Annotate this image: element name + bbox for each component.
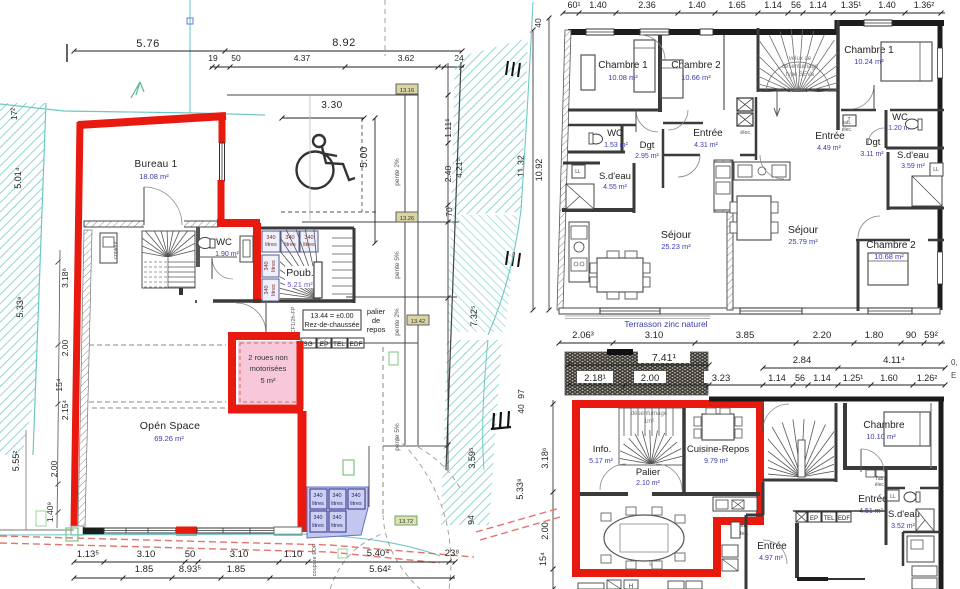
svg-text:1.40: 1.40 — [688, 0, 706, 10]
svg-text:2.00: 2.00 — [60, 339, 70, 356]
svg-text:13.44 = ±0.00: 13.44 = ±0.00 — [311, 313, 354, 320]
svg-text:60¹: 60¹ — [567, 0, 580, 10]
svg-text:LL: LL — [575, 169, 581, 175]
svg-text:Poub.: Poub. — [286, 267, 313, 279]
svg-text:17²: 17² — [9, 108, 19, 120]
svg-text:5.76: 5.76 — [136, 38, 159, 50]
svg-text:13.26: 13.26 — [400, 216, 415, 222]
svg-text:10.66 m²: 10.66 m² — [681, 73, 711, 82]
svg-text:litres: litres — [271, 260, 277, 272]
svg-text:S.d'eau: S.d'eau — [888, 509, 920, 520]
svg-text:Palier: Palier — [636, 467, 660, 478]
svg-text:4.37: 4.37 — [294, 53, 311, 63]
svg-text:7.41¹: 7.41¹ — [652, 352, 676, 364]
svg-text:3.11 m²: 3.11 m² — [860, 151, 884, 158]
svg-text:litres: litres — [312, 501, 324, 507]
svg-text:50: 50 — [185, 549, 196, 560]
svg-text:1.40: 1.40 — [589, 0, 607, 10]
svg-text:40: 40 — [516, 404, 526, 414]
svg-text:1.14: 1.14 — [768, 373, 786, 383]
svg-text:3.18⁶: 3.18⁶ — [540, 447, 550, 469]
svg-text:LL: LL — [933, 167, 939, 173]
svg-text:5.00: 5.00 — [359, 146, 370, 167]
svg-text:5 m²: 5 m² — [261, 376, 277, 385]
svg-text:Terrasson zinc naturel: Terrasson zinc naturel — [624, 319, 707, 329]
svg-text:coupure EDF: coupure EDF — [312, 543, 318, 576]
svg-text:5.33⁸: 5.33⁸ — [515, 478, 525, 500]
svg-text:1.10: 1.10 — [284, 549, 303, 560]
svg-text:340: 340 — [266, 235, 275, 241]
svg-text:1.53 m²: 1.53 m² — [604, 142, 628, 149]
svg-text:1.13⁵: 1.13⁵ — [77, 549, 99, 560]
svg-text:340: 340 — [264, 285, 270, 294]
svg-text:EP: EP — [320, 341, 329, 348]
svg-text:3.62: 3.62 — [398, 53, 415, 63]
svg-text:1.36²: 1.36² — [914, 0, 935, 10]
svg-text:litres: litres — [271, 284, 277, 296]
svg-text:340: 340 — [313, 493, 322, 499]
svg-text:13.72: 13.72 — [399, 519, 414, 525]
svg-text:4.49 m²: 4.49 m² — [817, 145, 841, 152]
svg-text:5.55²: 5.55² — [11, 451, 21, 472]
svg-text:copieur: copieur — [113, 241, 119, 259]
svg-text:3.23: 3.23 — [712, 373, 731, 384]
svg-text:2.20: 2.20 — [813, 330, 832, 341]
svg-text:élec.: élec. — [875, 482, 886, 488]
svg-text:2.10 m²: 2.10 m² — [636, 480, 660, 487]
svg-text:3.18⁶: 3.18⁶ — [60, 268, 70, 288]
svg-text:litres: litres — [350, 501, 362, 507]
svg-text:E: E — [951, 371, 956, 380]
svg-text:EDF: EDF — [838, 516, 850, 522]
svg-text:Séjour: Séjour — [788, 224, 819, 236]
svg-text:340: 340 — [313, 515, 322, 521]
svg-text:13.42: 13.42 — [411, 319, 426, 325]
svg-text:litres: litres — [312, 523, 324, 529]
svg-text:1.85: 1.85 — [135, 564, 154, 575]
svg-text:litres: litres — [331, 523, 343, 529]
svg-text:TEL: TEL — [333, 341, 345, 348]
svg-text:7.32⁵: 7.32⁵ — [469, 305, 479, 327]
svg-text:2.00: 2.00 — [540, 522, 550, 540]
svg-text:5.33⁸: 5.33⁸ — [15, 296, 25, 318]
svg-text:5.01⁴: 5.01⁴ — [13, 167, 23, 189]
svg-text:pente 5%: pente 5% — [394, 251, 401, 279]
svg-text:5.64²: 5.64² — [369, 564, 391, 575]
svg-text:4.55 m²: 4.55 m² — [603, 184, 627, 191]
svg-text:4.97 m²: 4.97 m² — [759, 555, 783, 562]
svg-text:97: 97 — [516, 389, 526, 399]
svg-text:type SEVa: type SEVa — [786, 72, 815, 78]
svg-text:15⁴: 15⁴ — [54, 378, 64, 391]
svg-text:WC: WC — [607, 128, 623, 139]
svg-text:70: 70 — [444, 207, 454, 217]
svg-text:4.31 m²: 4.31 m² — [694, 142, 718, 149]
svg-text:1.26²: 1.26² — [917, 373, 938, 383]
svg-text:SG: SG — [303, 341, 312, 348]
svg-text:5.40⁴: 5.40⁴ — [367, 548, 390, 559]
svg-text:1.40: 1.40 — [878, 0, 896, 10]
svg-text:90: 90 — [906, 330, 917, 341]
svg-text:340: 340 — [332, 493, 341, 499]
svg-text:3.10: 3.10 — [137, 549, 156, 560]
svg-text:Info.: Info. — [593, 444, 612, 455]
svg-text:1.14: 1.14 — [764, 0, 782, 10]
svg-text:3.10: 3.10 — [230, 549, 249, 560]
svg-text:4.11⁴: 4.11⁴ — [883, 355, 905, 366]
svg-text:15⁴: 15⁴ — [538, 552, 548, 566]
svg-text:Séjour: Séjour — [661, 229, 692, 241]
svg-text:2.00: 2.00 — [641, 373, 660, 384]
svg-text:10.24 m²: 10.24 m² — [854, 57, 884, 66]
svg-text:motorisées: motorisées — [250, 364, 287, 373]
svg-text:69.26 m²: 69.26 m² — [154, 434, 184, 443]
svg-text:repos: repos — [367, 325, 386, 334]
svg-text:25.23 m²: 25.23 m² — [661, 242, 691, 251]
svg-text:vélux de: vélux de — [789, 56, 812, 62]
svg-text:WC: WC — [892, 112, 908, 123]
svg-text:1.14: 1.14 — [813, 373, 831, 383]
svg-text:élec.: élec. — [842, 127, 853, 133]
svg-text:pente 2%: pente 2% — [394, 158, 401, 186]
svg-text:10.92: 10.92 — [534, 159, 544, 182]
svg-text:3.85: 3.85 — [736, 330, 755, 341]
svg-text:LL: LL — [890, 494, 896, 500]
svg-text:8.93⁵: 8.93⁵ — [179, 564, 201, 575]
svg-text:1m²: 1m² — [644, 419, 654, 425]
svg-text:H: H — [629, 584, 633, 589]
svg-text:Bureau 1: Bureau 1 — [135, 159, 178, 170]
svg-text:Chambre 1: Chambre 1 — [844, 45, 894, 56]
svg-text:340: 340 — [264, 261, 270, 270]
svg-text:Cuisine-Repos: Cuisine-Repos — [687, 444, 750, 455]
svg-text:18.08 m²: 18.08 m² — [139, 172, 169, 181]
svg-text:WC: WC — [216, 237, 232, 248]
svg-text:9.79 m²: 9.79 m² — [704, 458, 728, 465]
svg-text:23⁸: 23⁸ — [445, 548, 460, 559]
svg-text:1.80: 1.80 — [865, 330, 884, 341]
svg-text:Rez-de-chaussée: Rez-de-chaussée — [305, 322, 360, 329]
svg-text:Dgt: Dgt — [640, 140, 655, 151]
svg-text:élec.: élec. — [740, 130, 752, 136]
svg-text:TEL: TEL — [823, 516, 835, 522]
svg-text:8.92: 8.92 — [332, 37, 355, 49]
svg-text:3.30: 3.30 — [321, 100, 342, 111]
svg-text:de: de — [372, 316, 380, 325]
svg-text:2.06³: 2.06³ — [572, 330, 594, 341]
svg-text:3.59 m²: 3.59 m² — [901, 163, 925, 170]
svg-text:13.16: 13.16 — [400, 88, 415, 94]
svg-text:Entrée: Entrée — [815, 131, 845, 142]
svg-text:CF1/2h-FP: CF1/2h-FP — [291, 306, 297, 333]
svg-text:4.21⁵: 4.21⁵ — [454, 158, 464, 178]
svg-text:1.14: 1.14 — [809, 0, 827, 10]
svg-text:litres: litres — [265, 242, 277, 248]
svg-text:Chambre 1: Chambre 1 — [598, 60, 648, 71]
svg-text:Opén Space: Opén Space — [140, 420, 200, 432]
svg-text:25.79 m²: 25.79 m² — [788, 237, 818, 246]
svg-text:3.52 m²: 3.52 m² — [891, 523, 915, 530]
svg-text:94: 94 — [466, 515, 476, 525]
svg-text:Entrée: Entrée — [693, 128, 723, 139]
svg-text:2.18¹: 2.18¹ — [584, 373, 606, 384]
svg-text:0,: 0, — [951, 358, 958, 367]
svg-text:2.15⁴: 2.15⁴ — [60, 400, 70, 421]
svg-text:2.36: 2.36 — [638, 0, 656, 10]
svg-text:2 roues non: 2 roues non — [248, 353, 288, 362]
svg-text:désenfumage: désenfumage — [782, 64, 819, 70]
svg-text:1.11⁵: 1.11⁵ — [443, 118, 453, 137]
svg-text:EDF: EDF — [350, 341, 363, 348]
svg-text:pente 2%: pente 2% — [394, 308, 401, 336]
svg-text:S.d'eau: S.d'eau — [599, 171, 631, 182]
svg-text:1.60: 1.60 — [880, 373, 898, 383]
svg-text:19: 19 — [208, 53, 218, 63]
svg-text:40: 40 — [533, 18, 543, 28]
svg-text:pente 5%: pente 5% — [394, 423, 401, 451]
svg-text:10.10 m²: 10.10 m² — [866, 432, 896, 441]
svg-text:1.65: 1.65 — [728, 0, 746, 10]
svg-text:EP: EP — [810, 516, 818, 522]
svg-text:50: 50 — [231, 53, 241, 63]
svg-text:340: 340 — [332, 515, 341, 521]
svg-text:Chambre 2: Chambre 2 — [866, 240, 916, 251]
svg-text:tab.: tab. — [843, 120, 851, 126]
svg-text:59²: 59² — [924, 330, 938, 341]
svg-text:56: 56 — [795, 373, 805, 383]
svg-text:désenfumage: désenfumage — [631, 411, 668, 417]
svg-text:5.21 m²: 5.21 m² — [287, 280, 313, 289]
svg-text:3.10: 3.10 — [645, 330, 664, 341]
svg-text:Chambre 2: Chambre 2 — [671, 60, 721, 71]
svg-text:1.25¹: 1.25¹ — [843, 373, 864, 383]
svg-text:340: 340 — [351, 493, 360, 499]
svg-text:1.35¹: 1.35¹ — [841, 0, 862, 10]
svg-text:S.d'eau: S.d'eau — [897, 150, 929, 161]
svg-text:3.59⁵: 3.59⁵ — [467, 447, 477, 469]
svg-text:2.84: 2.84 — [793, 355, 812, 366]
svg-text:palier: palier — [367, 307, 386, 316]
svg-text:2.40: 2.40 — [443, 165, 453, 182]
svg-text:Entrée: Entrée — [858, 494, 888, 505]
svg-text:1.85: 1.85 — [227, 564, 246, 575]
svg-text:340: 340 — [304, 235, 313, 241]
svg-text:2.95 m²: 2.95 m² — [635, 153, 659, 160]
svg-text:56: 56 — [791, 0, 801, 10]
svg-text:5.17 m²: 5.17 m² — [589, 458, 613, 465]
svg-text:litres: litres — [331, 501, 343, 507]
